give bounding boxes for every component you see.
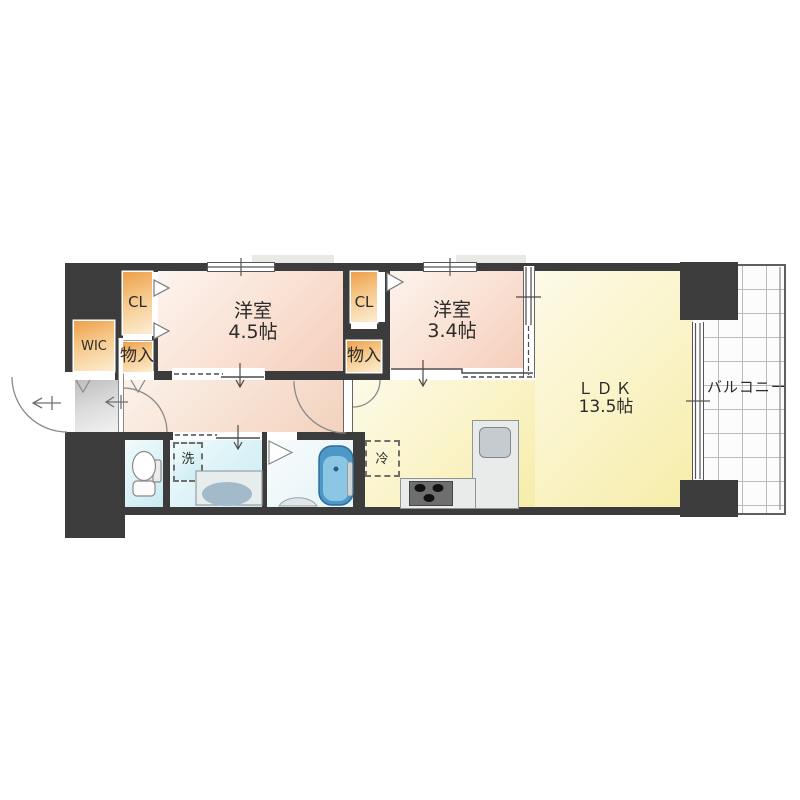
- linework-overlay: [0, 0, 800, 800]
- folding-door-icons: [154, 273, 403, 339]
- washbasin: [196, 471, 262, 506]
- bedroom2-partition-lines: [516, 267, 541, 375]
- stove-burners: [415, 484, 444, 502]
- closet-door-v-marks: [76, 380, 145, 392]
- bathtub: [319, 446, 353, 505]
- entrance-arrows: [33, 395, 128, 410]
- washroom-slider-lines: [175, 425, 260, 449]
- shower-area: [279, 498, 317, 506]
- toilet-fixture: [133, 452, 162, 497]
- bedroom1-slider-lines: [174, 363, 264, 387]
- floorplan-canvas: 洋室 4.5帖 洋室 3.4帖 ＬＤＫ 13.5帖 バルコニー WIC CL C…: [0, 0, 800, 800]
- bedroom2-slider-lines: [391, 360, 533, 386]
- hall-door-arc: [123, 388, 167, 432]
- ldk-door-arcs: [294, 380, 380, 433]
- front-door-arc: [12, 377, 67, 432]
- bath-door-icon: [269, 441, 292, 464]
